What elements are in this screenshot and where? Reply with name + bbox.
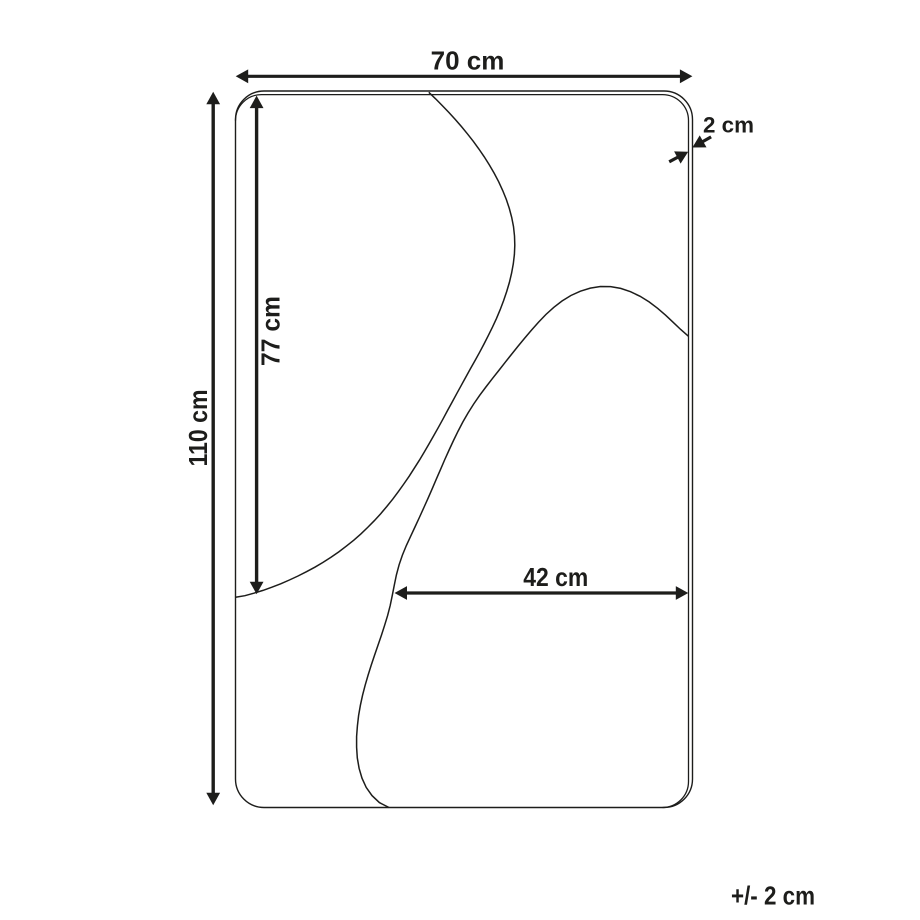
svg-text:77 cm: 77 cm bbox=[256, 296, 286, 366]
svg-text:110 cm: 110 cm bbox=[183, 390, 213, 467]
svg-text:42 cm: 42 cm bbox=[523, 562, 588, 592]
svg-text:70 cm: 70 cm bbox=[431, 46, 505, 76]
svg-text:2 cm: 2 cm bbox=[703, 113, 754, 138]
svg-text:+/- 2 cm: +/- 2 cm bbox=[731, 881, 815, 911]
